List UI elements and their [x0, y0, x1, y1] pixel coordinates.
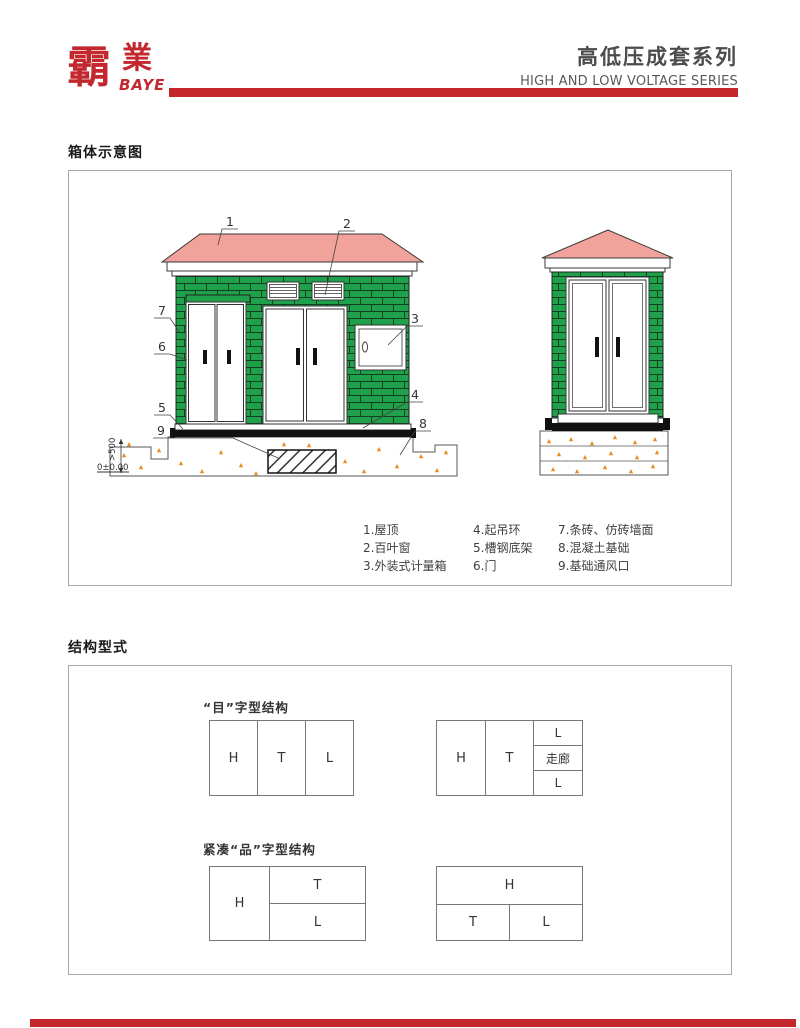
legend-item: 3.外装式计量箱 [363, 557, 446, 575]
cell-L: L [305, 721, 353, 795]
callout-8: 8 [419, 416, 427, 431]
cell-corridor: 走廊 [534, 745, 582, 770]
structure-panel: “目”字型结构 H T L H T L 走廊 L 紧凑“品”字型结构 H T L… [68, 665, 732, 975]
header-rule [169, 88, 738, 97]
legend-item: 1.屋顶 [363, 521, 446, 539]
roof-fascia-inner [172, 271, 412, 276]
callout-3: 3 [411, 311, 419, 326]
legend-column-2: 4.起吊环 5.槽钢底架 6.门 [473, 521, 532, 575]
cell-L: L [534, 721, 582, 745]
roof [162, 234, 423, 262]
legend-item: 9.基础通风口 [558, 557, 653, 575]
left-door [186, 302, 246, 424]
door-lintel [186, 295, 250, 302]
callout-6: 6 [158, 339, 166, 354]
cell-T: T [270, 867, 365, 903]
series-title-en: HIGH AND LOW VOLTAGE SERIES [520, 74, 738, 89]
legend-item: 4.起吊环 [473, 521, 532, 539]
callout-5: 5 [158, 400, 166, 415]
structure-diagram-top-span: H T L [436, 866, 583, 941]
brand-logo-char2: 業 [122, 44, 152, 74]
foundation-vent [268, 450, 336, 473]
elevation-label: 0±0.00 [97, 463, 128, 473]
legend-column-3: 7.条砖、仿砖墙面 8.混凝土基础 9.基础通风口 [558, 521, 653, 575]
dimension-label: >500 [108, 438, 118, 461]
legend-item: 8.混凝土基础 [558, 539, 653, 557]
side-roof-fascia [545, 258, 670, 268]
brand-logo-char1: 霸 [67, 46, 111, 90]
cell-T: T [437, 905, 509, 940]
footer-rule [30, 1019, 796, 1027]
structure-diagram-left-stack: H T L [209, 866, 366, 941]
legend-item: 5.槽钢底架 [473, 539, 532, 557]
legend-item: 6.门 [473, 557, 532, 575]
legend-item: 2.百叶窗 [363, 539, 446, 557]
callout-4: 4 [411, 387, 419, 402]
callout-1: 1 [226, 214, 234, 229]
side-door [566, 277, 649, 414]
callout-2: 2 [343, 216, 351, 231]
legend-item: 7.条砖、仿砖墙面 [558, 521, 653, 539]
roof-fascia [167, 262, 417, 271]
schematic-drawing: >500 0±0.00 1 2 [69, 171, 731, 517]
section-title-schematic: 箱体示意图 [68, 142, 143, 162]
structure-group1-label: “目”字型结构 [203, 697, 289, 716]
side-roof-fascia-inner [550, 268, 665, 272]
structure-diagram-corridor: H T L 走廊 L [436, 720, 583, 796]
cell-L: L [270, 903, 365, 940]
cell-T: T [485, 721, 533, 795]
header-titles: 高低压成套系列 HIGH AND LOW VOLTAGE SERIES [520, 41, 738, 89]
cell-H: H [437, 721, 485, 795]
side-base-bar [552, 423, 663, 431]
structure-diagram-row: H T L [209, 720, 354, 796]
structure-group2-label: 紧凑“品”字型结构 [203, 839, 316, 858]
side-hook-right [663, 418, 670, 430]
side-view [540, 230, 673, 475]
metering-box [355, 325, 406, 370]
cell-T: T [257, 721, 305, 795]
corridor-stack: L 走廊 L [533, 721, 582, 795]
callout-7: 7 [158, 303, 166, 318]
cell-L: L [534, 770, 582, 795]
center-door [263, 306, 347, 424]
section-title-structure: 结构型式 [68, 637, 128, 657]
brand-logo-latin: BAYE [119, 76, 165, 94]
cell-H: H [210, 721, 257, 795]
schematic-panel: >500 0±0.00 1 2 [68, 170, 732, 586]
side-hook-left [545, 418, 552, 430]
bottom-row: T L [437, 905, 582, 940]
cell-H: H [210, 867, 270, 940]
stack-column: T L [270, 867, 365, 940]
catalog-page: 霸 業 BAYE 高低压成套系列 HIGH AND LOW VOLTAGE SE… [0, 0, 800, 1028]
cell-L: L [509, 905, 582, 940]
channel-base-strip [175, 424, 411, 430]
cell-H: H [437, 867, 582, 905]
side-base-strip [558, 414, 658, 423]
louver-vent-left [267, 282, 299, 300]
series-title-cn: 高低压成套系列 [520, 41, 738, 71]
side-foundation [540, 431, 668, 475]
side-roof [542, 230, 673, 258]
lifting-lug-left [170, 428, 175, 438]
louver-vent-right [312, 282, 344, 300]
front-view: >500 0±0.00 1 2 [97, 214, 457, 476]
legend-column-1: 1.屋顶 2.百叶窗 3.外装式计量箱 [363, 521, 446, 575]
channel-base-bar [175, 430, 411, 437]
callout-9: 9 [157, 423, 165, 438]
